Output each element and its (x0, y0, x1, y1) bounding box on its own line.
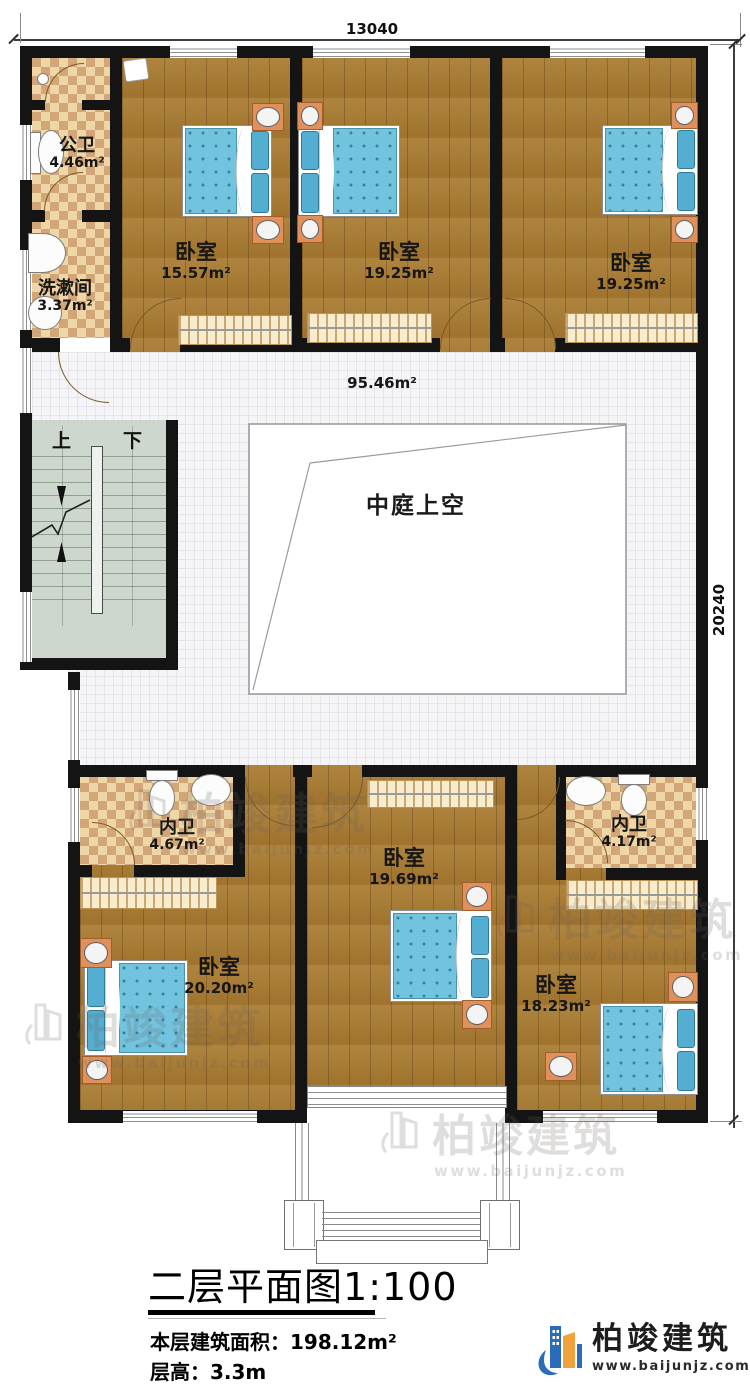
extension-line (710, 44, 742, 45)
room-name: 卧室 (596, 252, 666, 276)
lamp-icon (466, 886, 488, 907)
window (68, 788, 80, 842)
room-name: 卧室 (161, 241, 231, 265)
headboard-cushion (301, 131, 319, 171)
bed (298, 125, 400, 217)
watermark: 柏竣建筑 www.baijunjz.com (494, 884, 743, 964)
headboard-cushion (301, 173, 319, 213)
toilet-icon (621, 784, 647, 816)
bed-mattress (333, 128, 397, 214)
wall-segment (606, 868, 696, 880)
watermark-url: www.baijunjz.com (434, 1162, 627, 1180)
bed-mattress (603, 1006, 663, 1092)
sink-icon (566, 776, 606, 806)
floor-height-line: 层高：3.3m (150, 1356, 266, 1385)
brand-name: 柏竣建筑 (592, 1324, 750, 1355)
lamp-icon (466, 1004, 488, 1025)
nightstand (297, 102, 323, 130)
atrium-void (248, 423, 627, 695)
watermark-logo-icon (494, 893, 540, 939)
room-name: 卧室 (364, 241, 434, 265)
headboard-cushion (471, 916, 489, 956)
headboard-cushion (471, 958, 489, 998)
lamp-icon (301, 219, 319, 239)
wall-segment (110, 58, 122, 352)
hallway-area-label: 95.46m² (347, 374, 417, 392)
lamp-icon (549, 1056, 573, 1077)
room-area: 19.25m² (596, 276, 666, 293)
headboard-cushion (677, 1009, 695, 1049)
room-area: 4.17m² (601, 835, 656, 851)
headboard-cushion (251, 173, 269, 213)
watermark-url: www.baijunjz.com (182, 840, 375, 858)
room-label-public-bath: 公卫 4.46m² (49, 136, 104, 172)
room-label-bedroom-bottom-left: 卧室 20.20m² (184, 956, 254, 996)
atrium-label: 中庭上空 (366, 486, 466, 520)
window (313, 46, 410, 58)
room-name: 卧室 (521, 974, 591, 998)
lamp-icon (672, 976, 694, 998)
stair-direction-annotation (32, 420, 166, 670)
window (20, 348, 32, 413)
building-area-label: 本层建筑面积： (150, 1330, 290, 1354)
nightstand (545, 1052, 577, 1081)
bed-blanket (456, 913, 471, 999)
watermark-logo-icon (22, 1001, 68, 1047)
plan-title-text: 二层平面图 (148, 1265, 343, 1309)
room-area: 19.25m² (364, 265, 434, 282)
bed (182, 125, 272, 217)
watermark-logo-icon (126, 787, 172, 833)
dimension-depth: 20240 (710, 582, 728, 638)
extension-line (710, 1121, 742, 1122)
room-name: 卧室 (369, 847, 439, 871)
watermark: 柏竣建筑 www.baijunjz.com (378, 1100, 627, 1180)
watermark-brand: 柏竣建筑 (180, 778, 368, 842)
room-label-washroom: 洗漱间 3.37m² (37, 279, 92, 315)
watermark-logo-icon (378, 1109, 424, 1155)
plan-scale: 1:100 (343, 1265, 458, 1309)
building-area-line: 本层建筑面积：198.12m² (150, 1326, 397, 1355)
room-area: 3.37m² (37, 299, 92, 315)
top-dimension-line (14, 39, 741, 41)
window (170, 46, 237, 58)
headboard-cushion (677, 130, 695, 169)
wardrobe (565, 313, 698, 343)
bed (600, 1003, 698, 1095)
nightstand (671, 216, 698, 243)
stairwell (32, 420, 166, 670)
brand-url: www.baijunjz.com (592, 1359, 750, 1374)
room-label-bedroom-top-left: 卧室 15.57m² (161, 241, 231, 281)
lamp-icon (256, 220, 280, 240)
nightstand (671, 102, 698, 129)
bed-blanket (662, 128, 677, 212)
wall-segment (556, 868, 566, 880)
window (68, 690, 80, 760)
watermark-brand: 柏竣建筑 (548, 884, 736, 948)
plan-title: 二层平面图1:100 (148, 1256, 458, 1311)
watermark: 柏竣建筑 www.baijunjz.com (126, 778, 375, 858)
wall-segment (166, 420, 178, 670)
wall-segment (80, 865, 92, 877)
room-name: 卧室 (184, 956, 254, 980)
room-label-bedroom-bottom-middle: 卧室 19.69m² (369, 847, 439, 887)
stair-down-label: 下 (123, 426, 142, 453)
extension-line (20, 13, 21, 43)
wardrobe (178, 315, 292, 345)
floor-height-value: 3.3m (210, 1360, 266, 1384)
bed-blanket (319, 128, 334, 214)
title-underline-thin (148, 1318, 386, 1319)
room-name: 洗漱间 (37, 279, 92, 299)
room-name: 内卫 (601, 815, 656, 835)
watermark: 柏竣建筑 www.baijunjz.com (22, 992, 271, 1072)
nightstand (297, 215, 323, 243)
headboard-cushion (677, 172, 695, 211)
brand-logo: 柏竣建筑 www.baijunjz.com (534, 1322, 750, 1376)
room-label-bath-bottom-right: 内卫 4.17m² (601, 815, 656, 851)
window (123, 1111, 257, 1123)
bed-blanket (236, 128, 251, 214)
porch-post (295, 1123, 309, 1203)
headboard-cushion (677, 1051, 695, 1091)
title-underline (148, 1310, 375, 1315)
wall-segment (490, 46, 502, 352)
wardrobe (307, 313, 432, 343)
window (550, 46, 645, 58)
room-label-bedroom-top-right: 卧室 19.25m² (596, 252, 666, 292)
right-dimension-line (733, 44, 735, 1128)
room-label-bedroom-top-middle: 卧室 19.25m² (364, 241, 434, 281)
nightstand (252, 216, 284, 244)
room-area: 19.69m² (369, 871, 439, 888)
dimension-width: 13040 (346, 20, 398, 38)
watermark-url: www.baijunjz.com (78, 1054, 271, 1072)
wall-segment (362, 765, 517, 777)
bed (390, 910, 492, 1002)
nightstand (80, 938, 112, 968)
lamp-icon (301, 106, 319, 126)
window (20, 592, 32, 662)
lamp-icon (675, 220, 694, 239)
floor-height-label: 层高： (150, 1360, 210, 1384)
lamp-icon (256, 107, 280, 127)
bed-blanket (662, 1006, 677, 1092)
extension-line (740, 13, 741, 47)
wall-segment (82, 100, 112, 110)
bed-mattress (605, 128, 663, 212)
shower-head-icon (37, 73, 49, 85)
watermark-brand: 柏竣建筑 (76, 992, 264, 1056)
nightstand (252, 103, 284, 131)
brand-logo-icon (534, 1322, 584, 1376)
building-area-value: 198.12m² (290, 1330, 397, 1354)
wardrobe (80, 877, 217, 909)
lamp-icon (675, 106, 694, 125)
bed (602, 125, 698, 215)
nightstand (462, 1000, 492, 1029)
lamp-icon (84, 942, 108, 964)
room-label-bedroom-bottom-right: 卧室 18.23m² (521, 974, 591, 1014)
nightstand (668, 972, 698, 1002)
wall-segment (82, 210, 112, 222)
room-name: 公卫 (49, 136, 104, 156)
wall-segment (20, 658, 178, 670)
wall-segment (134, 865, 245, 877)
bed-mattress (185, 128, 237, 214)
room-area: 18.23m² (521, 998, 591, 1015)
porch-railing (322, 1212, 480, 1238)
wardrobe (367, 780, 494, 808)
nightstand (462, 882, 492, 911)
bed-mattress (393, 913, 457, 999)
window (696, 788, 708, 840)
watermark-brand: 柏竣建筑 (432, 1100, 620, 1164)
room-area: 15.57m² (161, 265, 231, 282)
room-area: 4.46m² (49, 156, 104, 172)
exterior-patch (0, 670, 68, 777)
floor-plan: 13040 20240 公卫 4.46m² 洗漱间 3.37m² 卧室 15.5… (0, 0, 750, 1391)
stair-up-label: 上 (52, 426, 71, 453)
watermark-url: www.baijunjz.com (550, 946, 743, 964)
headboard-cushion (251, 131, 269, 171)
floor-mat (123, 57, 150, 82)
